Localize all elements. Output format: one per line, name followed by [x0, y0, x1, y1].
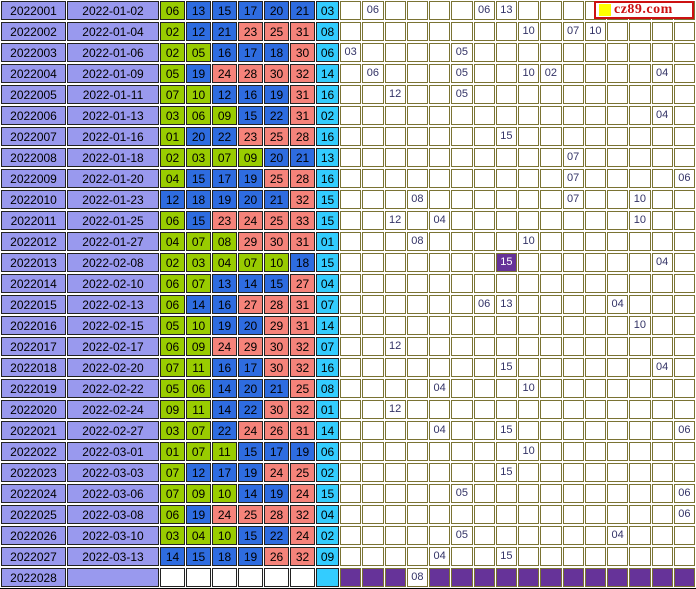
grid-cell	[652, 568, 673, 587]
grid-cell	[407, 274, 428, 293]
red-ball-cell: 29	[238, 337, 263, 356]
red-ball-cell: 14	[186, 295, 211, 314]
red-ball-cell: 28	[238, 64, 263, 83]
grid-cell: 04	[652, 358, 673, 377]
red-ball-cell: 01	[160, 442, 185, 461]
date-cell: 2022-02-27	[67, 421, 159, 440]
grid-cell	[607, 148, 628, 167]
red-ball-cell: 19	[264, 85, 289, 104]
grid-cell	[563, 400, 584, 419]
grid-cell	[451, 190, 472, 209]
red-ball-cell: 06	[160, 1, 185, 20]
issue-cell: 2022026	[1, 526, 66, 545]
red-ball-cell: 30	[264, 64, 289, 83]
grid-cell	[340, 106, 361, 125]
red-ball-cell: 04	[160, 232, 185, 251]
grid-cell	[563, 463, 584, 482]
grid-cell	[340, 274, 361, 293]
grid-cell: 08	[407, 232, 428, 251]
grid-cell	[563, 295, 584, 314]
blue-ball-cell: 14	[316, 64, 339, 83]
red-ball-cell: 25	[264, 169, 289, 188]
grid-cell	[362, 190, 383, 209]
grid-cell	[385, 1, 406, 20]
date-cell: 2022-02-17	[67, 337, 159, 356]
issue-cell: 2022016	[1, 316, 66, 335]
grid-cell	[629, 148, 650, 167]
blue-ball-cell: 15	[316, 253, 339, 272]
grid-cell	[518, 85, 539, 104]
grid-cell	[496, 505, 517, 524]
grid-cell: 10	[518, 379, 539, 398]
red-ball-cell: 06	[186, 106, 211, 125]
grid-cell: 10	[629, 316, 650, 335]
grid-cell: 15	[496, 127, 517, 146]
grid-cell	[585, 505, 606, 524]
red-ball-cell: 02	[160, 22, 185, 41]
red-ball-cell: 15	[186, 547, 211, 566]
grid-cell: 04	[607, 295, 628, 314]
red-ball-cell: 17	[212, 169, 237, 188]
red-ball-cell: 28	[264, 505, 289, 524]
date-cell: 2022-01-23	[67, 190, 159, 209]
table-row: 20220012022-01-0206131517202103060613	[0, 0, 696, 21]
date-cell: 2022-03-13	[67, 547, 159, 566]
grid-cell: 04	[652, 64, 673, 83]
table-row: 20220272022-03-13141518192632090415	[0, 546, 696, 567]
blue-ball-cell: 01	[316, 400, 339, 419]
red-ball-cell: 17	[238, 43, 263, 62]
date-cell: 2022-03-10	[67, 526, 159, 545]
grid-cell	[563, 253, 584, 272]
grid-cell	[674, 295, 695, 314]
red-ball-cell: 21	[264, 379, 289, 398]
table-row: 20220102022-01-2312181920213215080710	[0, 189, 696, 210]
grid-cell	[674, 400, 695, 419]
grid-cell	[585, 169, 606, 188]
red-ball-cell: 07	[160, 85, 185, 104]
grid-cell	[451, 253, 472, 272]
grid-cell	[429, 463, 450, 482]
red-ball-cell: 06	[186, 379, 211, 398]
red-ball-cell: 15	[238, 526, 263, 545]
red-ball-cell: 07	[186, 442, 211, 461]
grid-cell: 05	[451, 85, 472, 104]
red-ball-cell: 03	[160, 421, 185, 440]
grid-cell	[540, 274, 561, 293]
grid-cell	[629, 463, 650, 482]
grid-cell	[451, 22, 472, 41]
blue-ball-cell: 08	[316, 379, 339, 398]
grid-cell	[451, 274, 472, 293]
grid-cell	[474, 358, 495, 377]
table-row: 20220172022-02-170609242930320712	[0, 336, 696, 357]
red-ball-cell: 21	[264, 190, 289, 209]
red-ball-cell: 01	[160, 127, 185, 146]
red-ball-cell: 02	[160, 148, 185, 167]
grid-cell	[474, 85, 495, 104]
red-ball-cell: 07	[186, 232, 211, 251]
red-ball-cell: 24	[238, 421, 263, 440]
table-row: 20220152022-02-1306141627283107061304	[0, 294, 696, 315]
grid-cell	[429, 64, 450, 83]
red-ball-cell: 21	[212, 22, 237, 41]
grid-cell	[407, 463, 428, 482]
red-ball-cell: 06	[160, 505, 185, 524]
red-ball-cell: 12	[160, 190, 185, 209]
red-ball-cell: 09	[212, 106, 237, 125]
grid-cell	[496, 211, 517, 230]
red-ball-cell: 15	[264, 274, 289, 293]
red-ball-cell: 05	[160, 316, 185, 335]
red-ball-cell: 09	[186, 337, 211, 356]
grid-cell	[607, 43, 628, 62]
grid-cell	[674, 64, 695, 83]
grid-cell	[629, 400, 650, 419]
grid-cell	[652, 421, 673, 440]
red-ball-cell: 12	[212, 85, 237, 104]
table-row: 20220262022-03-10030410152224020504	[0, 525, 696, 546]
grid-cell	[629, 337, 650, 356]
red-ball-cell: 24	[238, 211, 263, 230]
red-ball-cell: 30	[264, 400, 289, 419]
grid-cell	[496, 484, 517, 503]
grid-cell	[585, 421, 606, 440]
red-ball-cell: 25	[238, 505, 263, 524]
grid-cell: 04	[652, 253, 673, 272]
grid-cell	[585, 400, 606, 419]
blue-ball-cell: 14	[316, 316, 339, 335]
grid-cell	[362, 379, 383, 398]
grid-cell	[385, 526, 406, 545]
grid-cell	[518, 190, 539, 209]
red-ball-cell: 02	[160, 253, 185, 272]
grid-cell	[451, 211, 472, 230]
grid-cell	[652, 463, 673, 482]
grid-cell	[407, 547, 428, 566]
grid-cell	[629, 64, 650, 83]
grid-cell	[496, 379, 517, 398]
issue-cell: 2022015	[1, 295, 66, 314]
red-ball-cell: 21	[290, 148, 315, 167]
grid-cell	[407, 211, 428, 230]
issue-cell: 2022021	[1, 421, 66, 440]
red-ball-cell: 32	[290, 547, 315, 566]
red-ball-cell: 31	[290, 85, 315, 104]
red-ball-cell: 22	[264, 526, 289, 545]
grid-cell	[563, 106, 584, 125]
grid-cell	[362, 295, 383, 314]
grid-cell	[652, 22, 673, 41]
grid-cell: 15	[496, 358, 517, 377]
red-ball-cell: 17	[238, 358, 263, 377]
issue-cell: 2022002	[1, 22, 66, 41]
issue-cell: 2022020	[1, 400, 66, 419]
grid-cell	[385, 358, 406, 377]
grid-cell	[474, 442, 495, 461]
red-ball-cell: 31	[290, 295, 315, 314]
date-cell: 2022-01-16	[67, 127, 159, 146]
grid-cell	[362, 547, 383, 566]
grid-cell	[540, 43, 561, 62]
grid-cell	[362, 43, 383, 62]
grid-cell	[518, 505, 539, 524]
grid-cell	[385, 379, 406, 398]
red-ball-cell: 25	[264, 127, 289, 146]
red-ball-cell: 26	[264, 421, 289, 440]
grid-cell	[563, 526, 584, 545]
grid-cell	[607, 127, 628, 146]
grid-cell: 05	[451, 484, 472, 503]
red-ball-cell: 19	[290, 442, 315, 461]
grid-cell	[585, 526, 606, 545]
table-row: 20220182022-02-20071116173032161504	[0, 357, 696, 378]
red-ball-cell: 23	[238, 127, 263, 146]
site-logo[interactable]: cz89.com	[594, 1, 694, 19]
red-ball-cell: 22	[212, 421, 237, 440]
grid-cell: 10	[629, 211, 650, 230]
grid-cell	[629, 568, 650, 587]
grid-cell	[563, 85, 584, 104]
blue-ball-cell: 16	[316, 358, 339, 377]
grid-cell	[563, 1, 584, 20]
grid-cell	[362, 442, 383, 461]
red-ball-cell	[160, 568, 185, 587]
grid-cell	[429, 43, 450, 62]
red-ball-cell: 03	[160, 526, 185, 545]
grid-cell	[585, 295, 606, 314]
grid-cell	[607, 232, 628, 251]
red-ball-cell: 11	[186, 358, 211, 377]
grid-cell: 10	[518, 64, 539, 83]
table-row: 20220252022-03-080619242528320406	[0, 504, 696, 525]
grid-cell	[540, 442, 561, 461]
grid-cell: 04	[652, 106, 673, 125]
red-ball-cell: 15	[186, 211, 211, 230]
red-ball-cell: 05	[186, 43, 211, 62]
grid-cell	[429, 526, 450, 545]
grid-cell	[607, 253, 628, 272]
grid-cell	[607, 547, 628, 566]
grid-cell	[652, 295, 673, 314]
grid-cell	[518, 358, 539, 377]
grid-cell	[362, 169, 383, 188]
grid-cell	[407, 421, 428, 440]
grid-cell	[474, 127, 495, 146]
grid-cell	[674, 337, 695, 356]
grid-cell	[629, 169, 650, 188]
grid-cell-highlighted: 15	[496, 253, 517, 272]
grid-cell	[407, 358, 428, 377]
blue-ball-cell: 03	[316, 1, 339, 20]
grid-cell	[652, 190, 673, 209]
grid-cell	[340, 526, 361, 545]
grid-cell	[563, 127, 584, 146]
red-ball-cell: 14	[212, 379, 237, 398]
grid-cell	[674, 106, 695, 125]
grid-cell	[607, 568, 628, 587]
red-ball-cell: 03	[160, 106, 185, 125]
red-ball-cell: 18	[264, 43, 289, 62]
date-cell: 2022-01-09	[67, 64, 159, 83]
grid-cell	[429, 295, 450, 314]
grid-cell	[429, 148, 450, 167]
grid-cell	[340, 22, 361, 41]
red-ball-cell: 07	[186, 421, 211, 440]
grid-cell	[340, 358, 361, 377]
grid-cell	[540, 169, 561, 188]
grid-cell	[340, 253, 361, 272]
grid-cell	[540, 337, 561, 356]
red-ball-cell: 15	[186, 169, 211, 188]
grid-cell	[652, 274, 673, 293]
red-ball-cell: 29	[238, 232, 263, 251]
date-cell: 2022-01-18	[67, 148, 159, 167]
grid-cell	[407, 442, 428, 461]
grid-cell	[674, 379, 695, 398]
table-row: 202202808	[0, 567, 696, 588]
grid-cell	[362, 106, 383, 125]
grid-cell	[496, 568, 517, 587]
red-ball-cell: 04	[212, 253, 237, 272]
grid-cell	[629, 442, 650, 461]
grid-cell: 15	[496, 547, 517, 566]
grid-cell	[429, 85, 450, 104]
grid-cell	[340, 400, 361, 419]
red-ball-cell	[264, 568, 289, 587]
red-ball-cell: 18	[186, 190, 211, 209]
grid-cell	[540, 85, 561, 104]
grid-cell	[407, 64, 428, 83]
grid-cell	[674, 547, 695, 566]
red-ball-cell: 19	[238, 547, 263, 566]
red-ball-cell: 07	[238, 253, 263, 272]
red-ball-cell: 32	[290, 190, 315, 209]
blue-ball-cell: 15	[316, 190, 339, 209]
grid-cell: 05	[451, 526, 472, 545]
grid-cell	[407, 379, 428, 398]
grid-cell	[518, 547, 539, 566]
grid-cell	[607, 64, 628, 83]
red-ball-cell: 15	[238, 106, 263, 125]
red-ball-cell: 06	[160, 337, 185, 356]
grid-cell	[674, 190, 695, 209]
grid-cell	[340, 379, 361, 398]
grid-cell	[540, 316, 561, 335]
grid-cell	[540, 505, 561, 524]
grid-cell	[496, 337, 517, 356]
issue-cell: 2022024	[1, 484, 66, 503]
red-ball-cell: 25	[290, 379, 315, 398]
grid-cell	[563, 484, 584, 503]
grid-cell	[563, 421, 584, 440]
grid-cell	[629, 43, 650, 62]
grid-cell	[362, 148, 383, 167]
grid-cell	[563, 442, 584, 461]
red-ball-cell: 14	[238, 484, 263, 503]
blue-ball-cell: 04	[316, 274, 339, 293]
grid-cell	[585, 337, 606, 356]
table-row: 20220092022-01-20041517192528160706	[0, 168, 696, 189]
issue-cell: 2022018	[1, 358, 66, 377]
grid-cell	[540, 484, 561, 503]
grid-cell	[652, 400, 673, 419]
grid-cell	[563, 358, 584, 377]
red-ball-cell: 19	[238, 169, 263, 188]
blue-ball-cell: 09	[316, 547, 339, 566]
red-ball-cell: 30	[264, 337, 289, 356]
grid-cell	[385, 64, 406, 83]
grid-cell	[518, 421, 539, 440]
grid-cell: 12	[385, 400, 406, 419]
grid-cell	[496, 190, 517, 209]
red-ball-cell: 07	[212, 148, 237, 167]
grid-cell	[585, 127, 606, 146]
issue-cell: 2022009	[1, 169, 66, 188]
grid-cell	[540, 127, 561, 146]
grid-cell	[407, 169, 428, 188]
red-ball-cell: 31	[290, 22, 315, 41]
red-ball-cell: 25	[264, 211, 289, 230]
grid-cell	[607, 400, 628, 419]
grid-cell: 03	[340, 43, 361, 62]
grid-cell	[585, 463, 606, 482]
grid-cell	[585, 274, 606, 293]
grid-cell: 12	[385, 85, 406, 104]
blue-ball-cell: 14	[316, 421, 339, 440]
red-ball-cell: 16	[212, 358, 237, 377]
grid-cell	[474, 316, 495, 335]
grid-cell	[652, 127, 673, 146]
grid-cell	[629, 274, 650, 293]
grid-cell	[652, 547, 673, 566]
grid-cell	[385, 442, 406, 461]
issue-cell: 2022014	[1, 274, 66, 293]
table-row: 20220202022-02-240911142230320112	[0, 399, 696, 420]
grid-cell	[607, 22, 628, 41]
date-cell: 2022-02-10	[67, 274, 159, 293]
grid-cell	[362, 127, 383, 146]
grid-cell: 02	[540, 64, 561, 83]
grid-cell	[362, 274, 383, 293]
grid-cell	[652, 316, 673, 335]
red-ball-cell: 31	[290, 316, 315, 335]
red-ball-cell: 24	[212, 64, 237, 83]
grid-cell	[607, 211, 628, 230]
blue-ball-cell: 07	[316, 337, 339, 356]
grid-cell	[362, 358, 383, 377]
red-ball-cell: 32	[290, 64, 315, 83]
red-ball-cell: 07	[160, 358, 185, 377]
grid-cell	[540, 568, 561, 587]
blue-ball-cell: 02	[316, 526, 339, 545]
red-ball-cell: 19	[186, 505, 211, 524]
red-ball-cell: 09	[238, 148, 263, 167]
grid-cell	[652, 85, 673, 104]
grid-cell	[674, 463, 695, 482]
grid-cell	[429, 106, 450, 125]
grid-cell	[629, 484, 650, 503]
grid-cell	[652, 232, 673, 251]
red-ball-cell: 07	[160, 484, 185, 503]
grid-cell	[474, 190, 495, 209]
issue-cell: 2022005	[1, 85, 66, 104]
grid-cell	[362, 316, 383, 335]
grid-cell	[340, 64, 361, 83]
issue-cell: 2022001	[1, 1, 66, 20]
grid-cell	[340, 169, 361, 188]
grid-cell	[674, 43, 695, 62]
